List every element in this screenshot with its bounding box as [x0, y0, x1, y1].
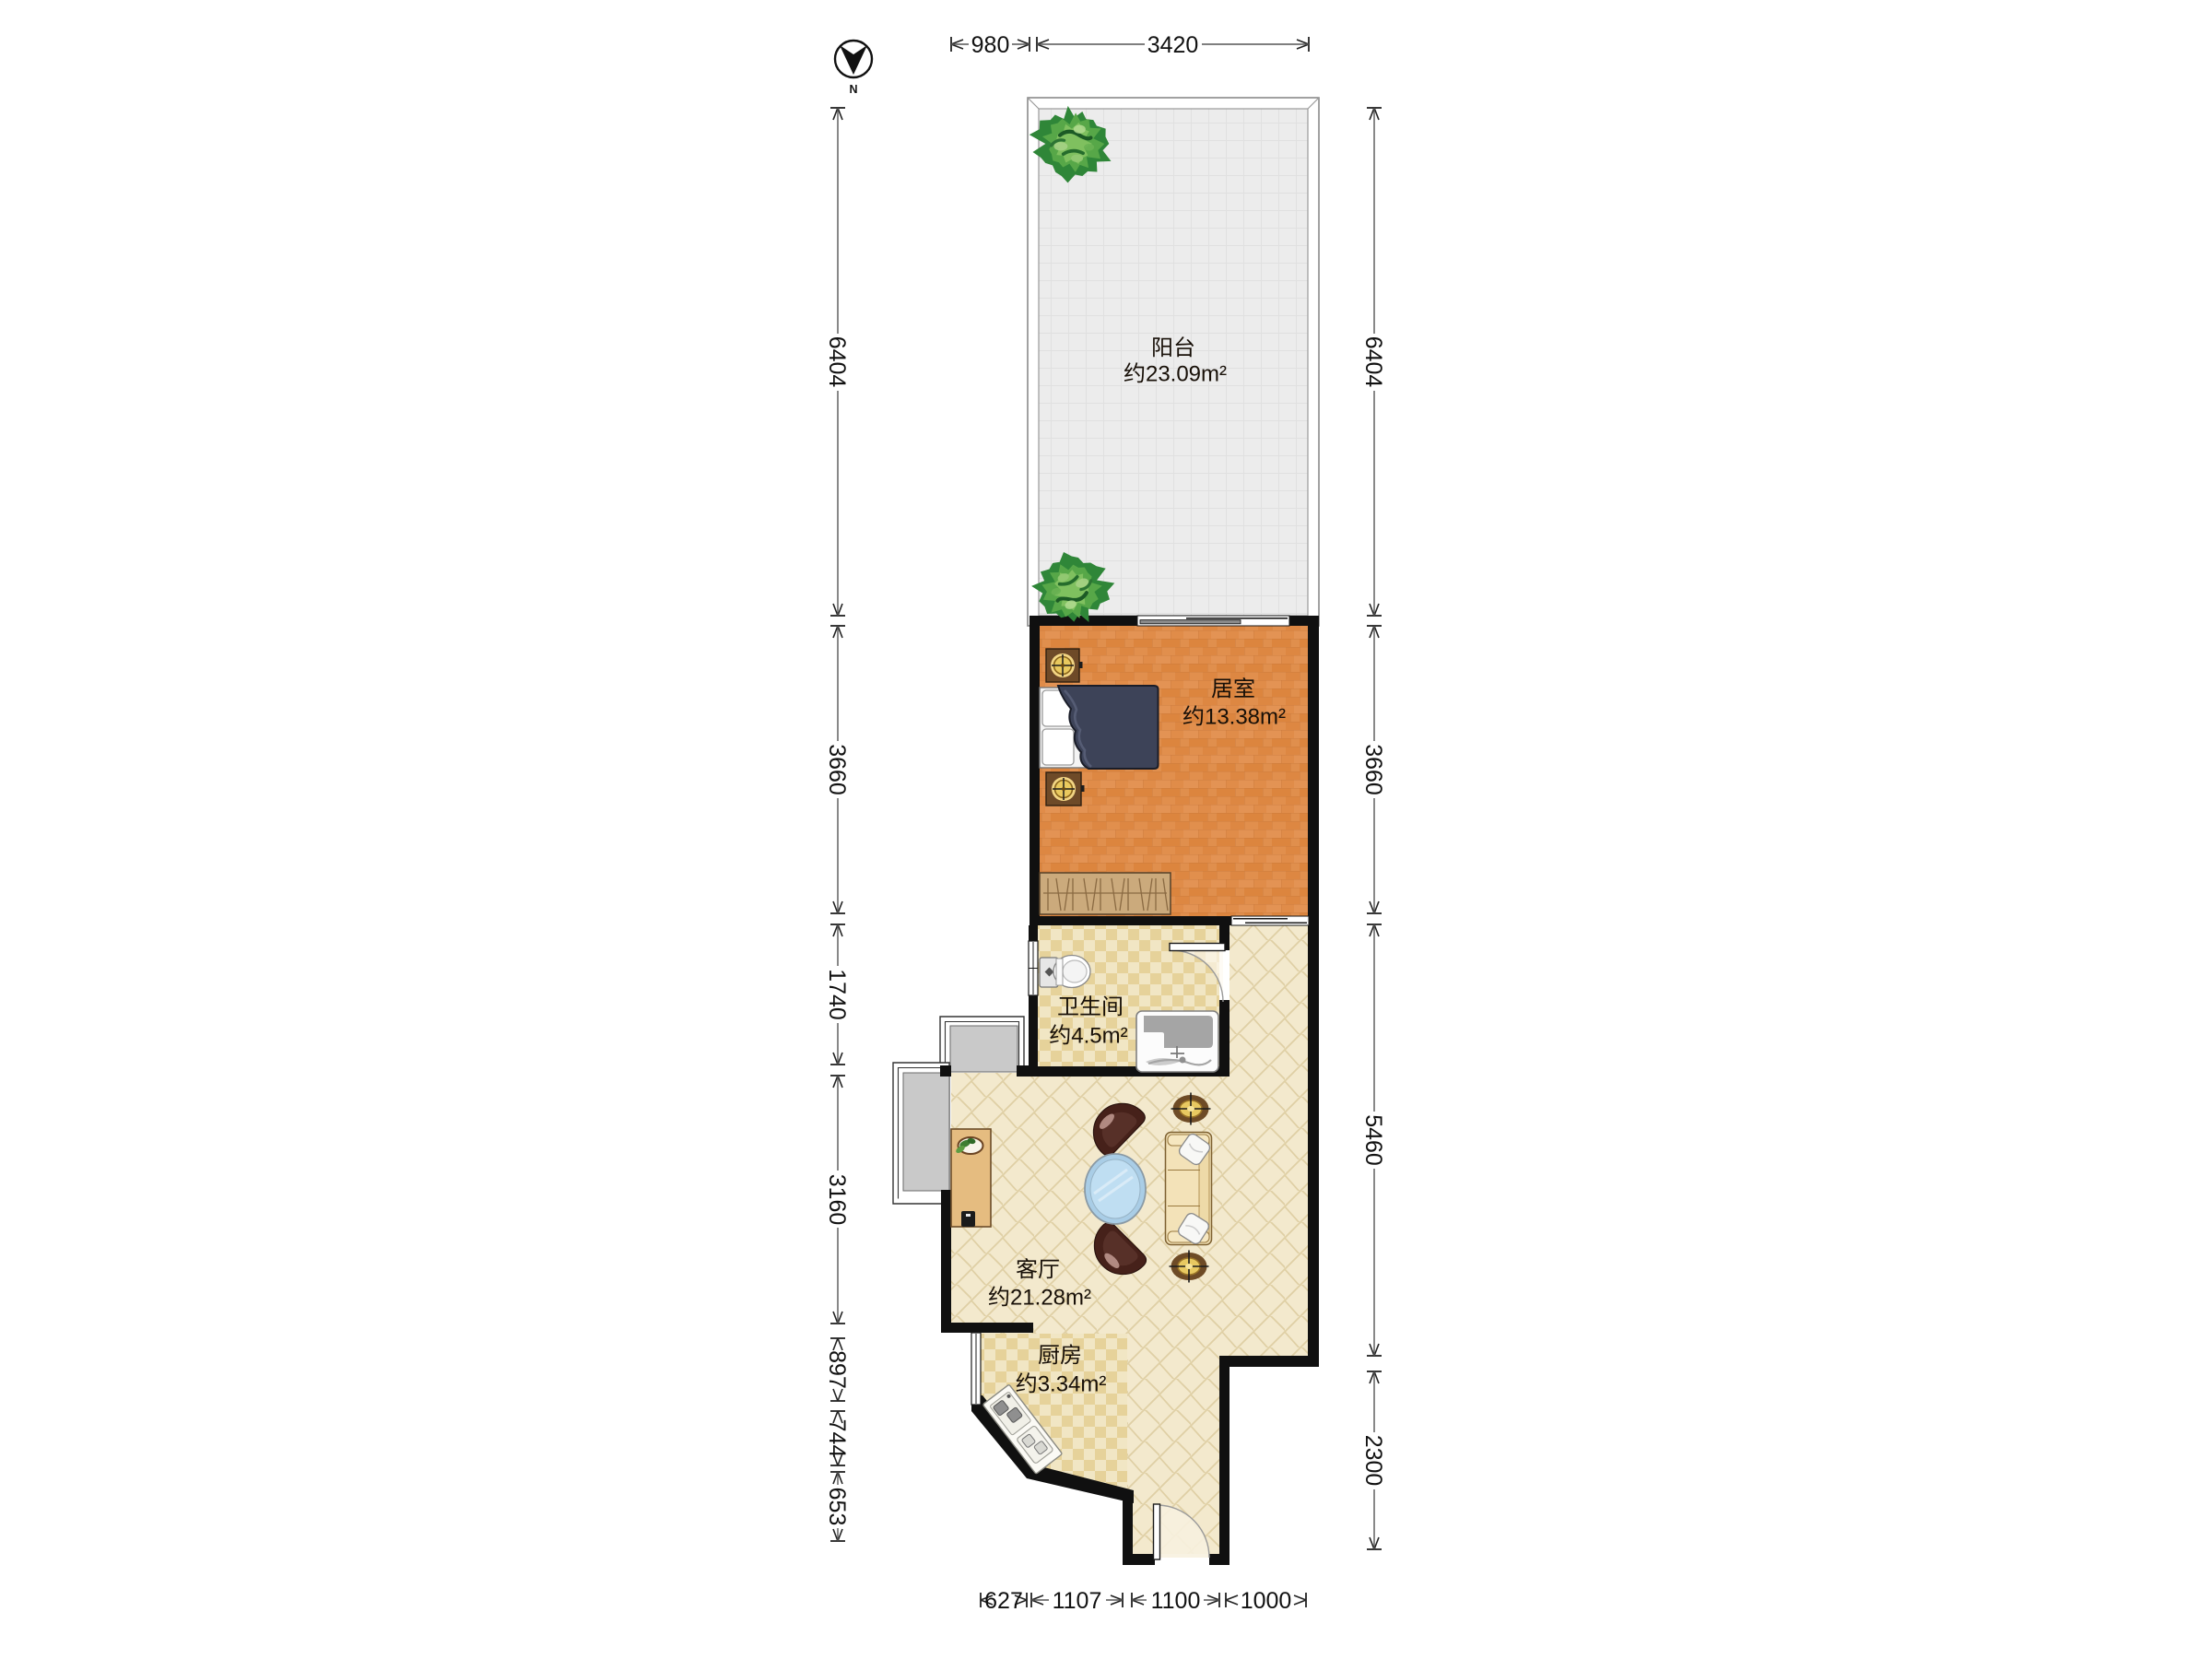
svg-text:1000: 1000 — [1241, 1588, 1292, 1614]
svg-text:4.5m²: 4.5m² — [1071, 1023, 1127, 1048]
svg-text:13.38m²: 13.38m² — [1205, 704, 1286, 729]
svg-text:897: 897 — [824, 1350, 850, 1389]
svg-text:23.09m²: 23.09m² — [1146, 361, 1227, 386]
svg-text:653: 653 — [824, 1488, 850, 1526]
svg-text:6404: 6404 — [1360, 336, 1386, 388]
svg-text:3660: 3660 — [824, 744, 850, 795]
svg-text:3420: 3420 — [1147, 32, 1199, 58]
svg-text:1740: 1740 — [824, 969, 850, 1020]
svg-text:1107: 1107 — [1053, 1588, 1102, 1614]
svg-text:2300: 2300 — [1360, 1435, 1386, 1487]
svg-text:21.28m²: 21.28m² — [1010, 1285, 1091, 1310]
svg-text:3.34m²: 3.34m² — [1038, 1371, 1107, 1396]
svg-text:5460: 5460 — [1360, 1114, 1386, 1166]
svg-text:3660: 3660 — [1360, 744, 1386, 795]
svg-text:N: N — [849, 83, 857, 96]
svg-text:980: 980 — [971, 32, 1010, 58]
svg-text:1100: 1100 — [1151, 1588, 1201, 1614]
svg-text:744: 744 — [824, 1419, 850, 1458]
svg-text:6404: 6404 — [824, 336, 850, 388]
svg-text:627: 627 — [984, 1588, 1023, 1614]
svg-text:3160: 3160 — [824, 1174, 850, 1226]
